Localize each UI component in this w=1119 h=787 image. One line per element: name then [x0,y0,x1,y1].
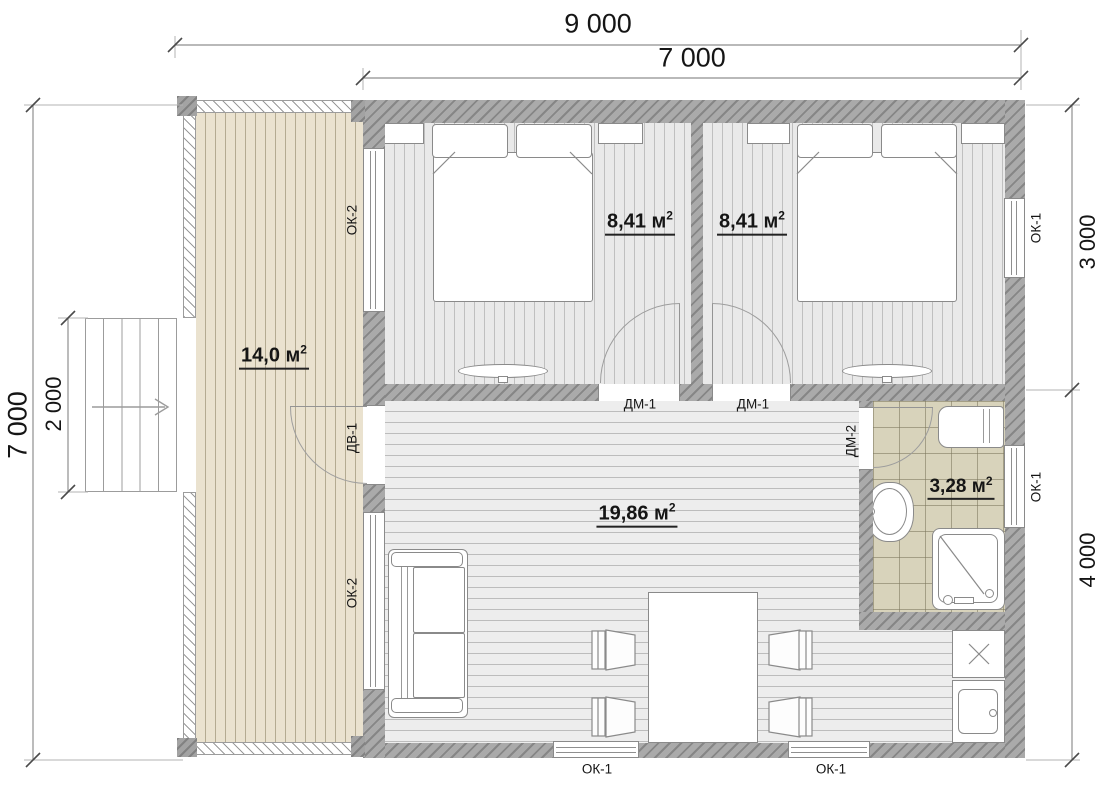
sofa-backrest-line [401,567,402,698]
window-ok2-living [363,512,385,690]
window-ok2-bedroom-left [363,148,385,312]
terrace-junction-post [351,100,365,122]
bathroom-area-label: 3,28 м2 [927,474,994,500]
bed-right-pillow-2 [881,124,957,158]
dim-right-lower: 4 000 [1075,532,1101,587]
window-tag-ok2-top: ОК-2 [345,205,360,235]
bedroom-right-area-label: 8,41 м2 [717,209,787,236]
door-tag-dm2: ДМ-2 [844,425,859,457]
entrance-stairs [85,318,177,492]
terrace-corner-post [177,738,197,757]
toilet [938,406,1004,448]
nightstand [747,123,790,144]
kitchen-hob-unit [952,630,1005,678]
window-tag-ok1-bottom-right: ОК-1 [816,762,846,777]
door-tag-dv1: ДВ-1 [345,423,360,453]
window-tag-ok2-bottom: ОК-2 [345,578,360,608]
toilet-tank-line [983,409,984,443]
desk-right-stem [882,376,892,383]
window-tag-ok1-bottom-left: ОК-1 [582,762,612,777]
nightstand [382,123,424,144]
living-area-label: 19,86 м2 [596,501,677,528]
bedroom-left-area-label: 8,41 м2 [605,209,675,236]
floor-plan: 9 000 7 000 7 000 2 000 3 000 4 000 14,0… [0,0,1119,787]
dim-right-upper: 3 000 [1075,214,1101,269]
dim-left-total: 7 000 [3,391,34,459]
bed-left-pillow-1 [432,124,508,158]
shower-mixer [943,595,953,605]
wall-bottom [363,743,1025,758]
bed-right-mattress [797,152,957,302]
terrace-wall-left-upper [183,100,196,318]
terrace-wall-top [183,100,365,113]
terrace-wall-left-lower [183,492,196,755]
toilet-tank-line [989,409,990,443]
dim-top-total: 9 000 [564,9,632,40]
bed-left-pillow-2 [516,124,592,158]
bed-left-mattress [433,152,593,302]
wall-top [363,100,1025,123]
door-dm2-opening [859,407,873,470]
window-tag-ok1-bathroom: ОК-1 [1029,472,1044,502]
terrace-area-label: 14,0 м2 [239,343,309,370]
wall-bedrooms-living [385,384,1005,401]
shower-mixer-bar [954,597,974,604]
terrace-corner-post [177,96,197,116]
sofa-cushion [413,633,465,698]
sofa [388,549,468,718]
bed-right-pillow-1 [797,124,873,158]
sofa-armrest-top [391,552,463,567]
kitchen-sink-unit [952,680,1005,743]
wall-bathroom-bottom [859,612,1005,630]
nightstand [598,123,643,144]
window-ok1-living-left [553,741,639,758]
dining-table [648,592,758,743]
dim-left-stairs: 2 000 [41,376,67,431]
window-ok1-bathroom [1004,445,1025,528]
sofa-armrest-bottom [391,698,463,713]
window-ok1-bedroom-right [1004,198,1025,278]
terrace-junction-post [351,736,365,757]
dim-top-main: 7 000 [658,43,726,74]
sofa-cushion [413,567,465,633]
kitchen-sink-drain [989,709,997,717]
shower-tray [932,528,1005,610]
washbasin [866,482,914,542]
terrace-wall-bottom [183,742,365,755]
washbasin-bowl [872,488,907,535]
window-ok1-living-right [788,741,870,758]
shower-drain [985,589,994,598]
nightstand [961,123,1005,144]
sofa-backrest-line [407,567,408,698]
desk-left-stem [498,376,508,383]
wall-between-bedrooms [691,123,703,384]
door-tag-dm1-left: ДМ-1 [624,397,656,412]
window-tag-ok1-right-top: ОК-1 [1029,213,1044,243]
door-tag-dm1-right: ДМ-1 [737,397,769,412]
